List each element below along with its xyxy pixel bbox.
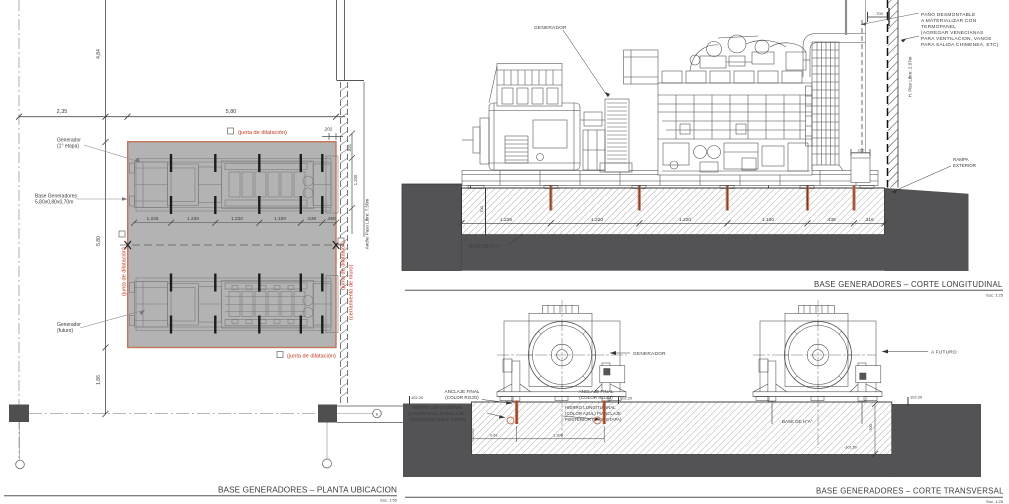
svg-text:b: b [376, 412, 379, 417]
svg-text:.439: .439 [826, 217, 836, 223]
svg-text:1,86: 1,86 [96, 375, 102, 385]
svg-text:POSTERIOR (EN 2° ETAPA): POSTERIOR (EN 2° ETAPA) [565, 417, 622, 422]
svg-text:.316: .316 [864, 217, 874, 223]
svg-text:1.100: 1.100 [762, 217, 774, 223]
svg-text:(futuro): (futuro) [57, 328, 73, 334]
svg-text:4,84: 4,84 [96, 49, 102, 59]
svg-text:(cerramiento de muro): (cerramiento de muro) [349, 265, 355, 320]
svg-text:EXTERIOR: EXTERIOR [953, 163, 977, 168]
svg-text:.700: .700 [875, 11, 884, 16]
svg-text:(junta de dilatación): (junta de dilatación) [238, 130, 287, 136]
svg-text:.450: .450 [326, 216, 336, 222]
svg-text:(junta de dilatación): (junta de dilatación) [287, 354, 336, 360]
svg-text:1.220: 1.220 [591, 217, 603, 223]
svg-text:Esc. 1:25: Esc. 1:25 [986, 293, 1003, 298]
svg-text:0.51: 0.51 [490, 433, 499, 438]
svg-text:1.225: 1.225 [500, 217, 512, 223]
svg-text:(1° etapa): (1° etapa) [57, 144, 79, 150]
svg-text:ANCLAJE FINAL: ANCLAJE FINAL [445, 389, 480, 394]
svg-text:PARA VENTILACION, VANOS: PARA VENTILACION, VANOS [921, 36, 992, 42]
svg-text:1.100: 1.100 [274, 216, 286, 222]
svg-text:1.200: 1.200 [553, 433, 564, 438]
svg-text:(COLOR ROJO): (COLOR ROJO) [579, 395, 613, 400]
svg-text:PAÑO DESMONTABLE: PAÑO DESMONTABLE [921, 11, 975, 18]
svg-text:1.220: 1.220 [679, 217, 691, 223]
svg-text:-101.50: -101.50 [844, 446, 857, 450]
svg-text:5,80: 5,80 [226, 109, 237, 115]
svg-text:A MATERIALIZAR CON: A MATERIALIZAR CON [921, 18, 977, 24]
svg-text:(COLOR ROJO): (COLOR ROJO) [445, 395, 479, 400]
svg-text:1.200: 1.200 [353, 174, 358, 185]
svg-text:BASE DE H°A°: BASE DE H°A° [782, 419, 813, 424]
svg-text:(COLOR AZUL) P/ANCLAJE: (COLOR AZUL) P/ANCLAJE [408, 411, 464, 416]
svg-text:BASE GENERADORES – PLANTA UBIC: BASE GENERADORES – PLANTA UBICACION [218, 486, 397, 495]
svg-text:5,80x0,80x0,70m: 5,80x0,80x0,70m [35, 200, 73, 206]
svg-text:2,35: 2,35 [57, 109, 68, 115]
svg-text:5,80: 5,80 [96, 236, 102, 246]
svg-text:HIERRO LONGITUDINAL: HIERRO LONGITUDINAL [412, 405, 463, 410]
svg-text:(junta de dilatación): (junta de dilatación) [122, 247, 128, 296]
svg-text:PARA SALIDA CHIMENEA, ETC): PARA SALIDA CHIMENEA, ETC) [921, 42, 999, 48]
svg-text:GENERADOR: GENERADOR [633, 351, 666, 357]
svg-text:Ancho Paso Libre: 7.50m: Ancho Paso Libre: 7.50m [365, 198, 370, 249]
svg-text:(COLOR AZUL) P/ANCLAJE: (COLOR AZUL) P/ANCLAJE [565, 411, 621, 416]
svg-text:102.20: 102.20 [411, 395, 424, 400]
svg-text:1.220: 1.220 [187, 216, 199, 222]
svg-text:BASE GENERADORES – CORTE TRANS: BASE GENERADORES – CORTE TRANSVERSAL [816, 486, 1004, 495]
svg-text:A FUTURO: A FUTURO [931, 350, 957, 356]
svg-text:HIERRO LONGITUDINAL: HIERRO LONGITUDINAL [565, 405, 616, 410]
svg-text:Esc. 1:25: Esc. 1:25 [986, 499, 1003, 504]
svg-text:1.225: 1.225 [146, 216, 158, 222]
svg-text:ANCLAJE FINAL: ANCLAJE FINAL [579, 389, 614, 394]
svg-text:.700: .700 [479, 205, 484, 214]
svg-text:1.220: 1.220 [231, 216, 243, 222]
svg-text:(junta de dilatación): (junta de dilatación) [341, 241, 347, 290]
svg-text:102.20: 102.20 [910, 395, 923, 400]
svg-text:102.20: 102.20 [620, 396, 633, 401]
svg-text:Esc. 1:50: Esc. 1:50 [380, 498, 397, 503]
svg-text:.700: .700 [868, 423, 873, 432]
svg-text:BASE GENERADORES – CORTE LONGI: BASE GENERADORES – CORTE LONGITUDINAL [814, 280, 1003, 289]
svg-text:TERMOPANEL: TERMOPANEL [921, 24, 956, 30]
svg-text:.831: .831 [347, 143, 352, 152]
svg-text:(AGREGAR VENECIANAS: (AGREGAR VENECIANAS [921, 30, 984, 36]
svg-text:.539: .539 [307, 216, 317, 222]
svg-text:BASE DE H°A°: BASE DE H°A° [469, 244, 500, 249]
svg-text:RAMPA: RAMPA [953, 157, 969, 162]
svg-text:H. Piso Libre: 2.97m: H. Piso Libre: 2.97m [908, 56, 913, 97]
svg-text:GENERADOR: GENERADOR [534, 25, 567, 31]
svg-text:.202: .202 [324, 127, 333, 132]
svg-text:POSTERIOR (EN 2° ETAPA): POSTERIOR (EN 2° ETAPA) [410, 417, 467, 422]
svg-text:.100: .100 [857, 148, 866, 153]
